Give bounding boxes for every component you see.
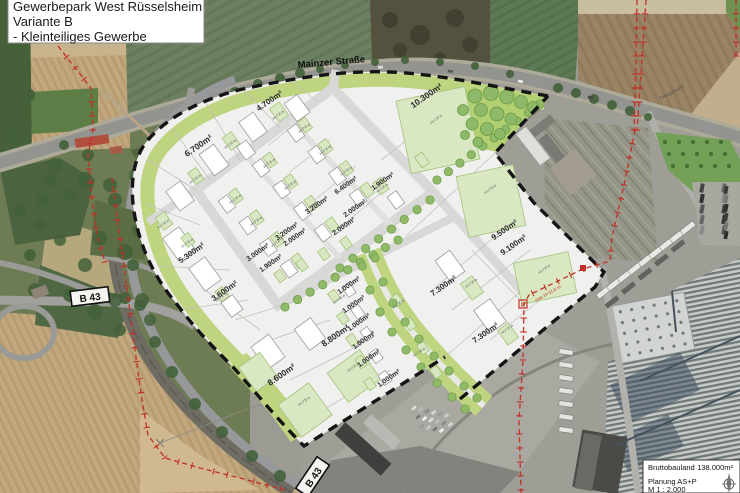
svg-text:Bruttobauland: Bruttobauland <box>648 463 695 472</box>
svg-text:- Kleinteiliges Gewerbe: - Kleinteiliges Gewerbe <box>13 29 147 44</box>
svg-text:P: P <box>521 303 525 309</box>
svg-text:138.000m²: 138.000m² <box>697 463 733 472</box>
svg-text:M 1 : 2.000: M 1 : 2.000 <box>648 485 686 493</box>
svg-text:Gewerbepark West Rüsselsheim: Gewerbepark West Rüsselsheim <box>13 0 202 14</box>
svg-text:Variante B: Variante B <box>13 14 73 29</box>
